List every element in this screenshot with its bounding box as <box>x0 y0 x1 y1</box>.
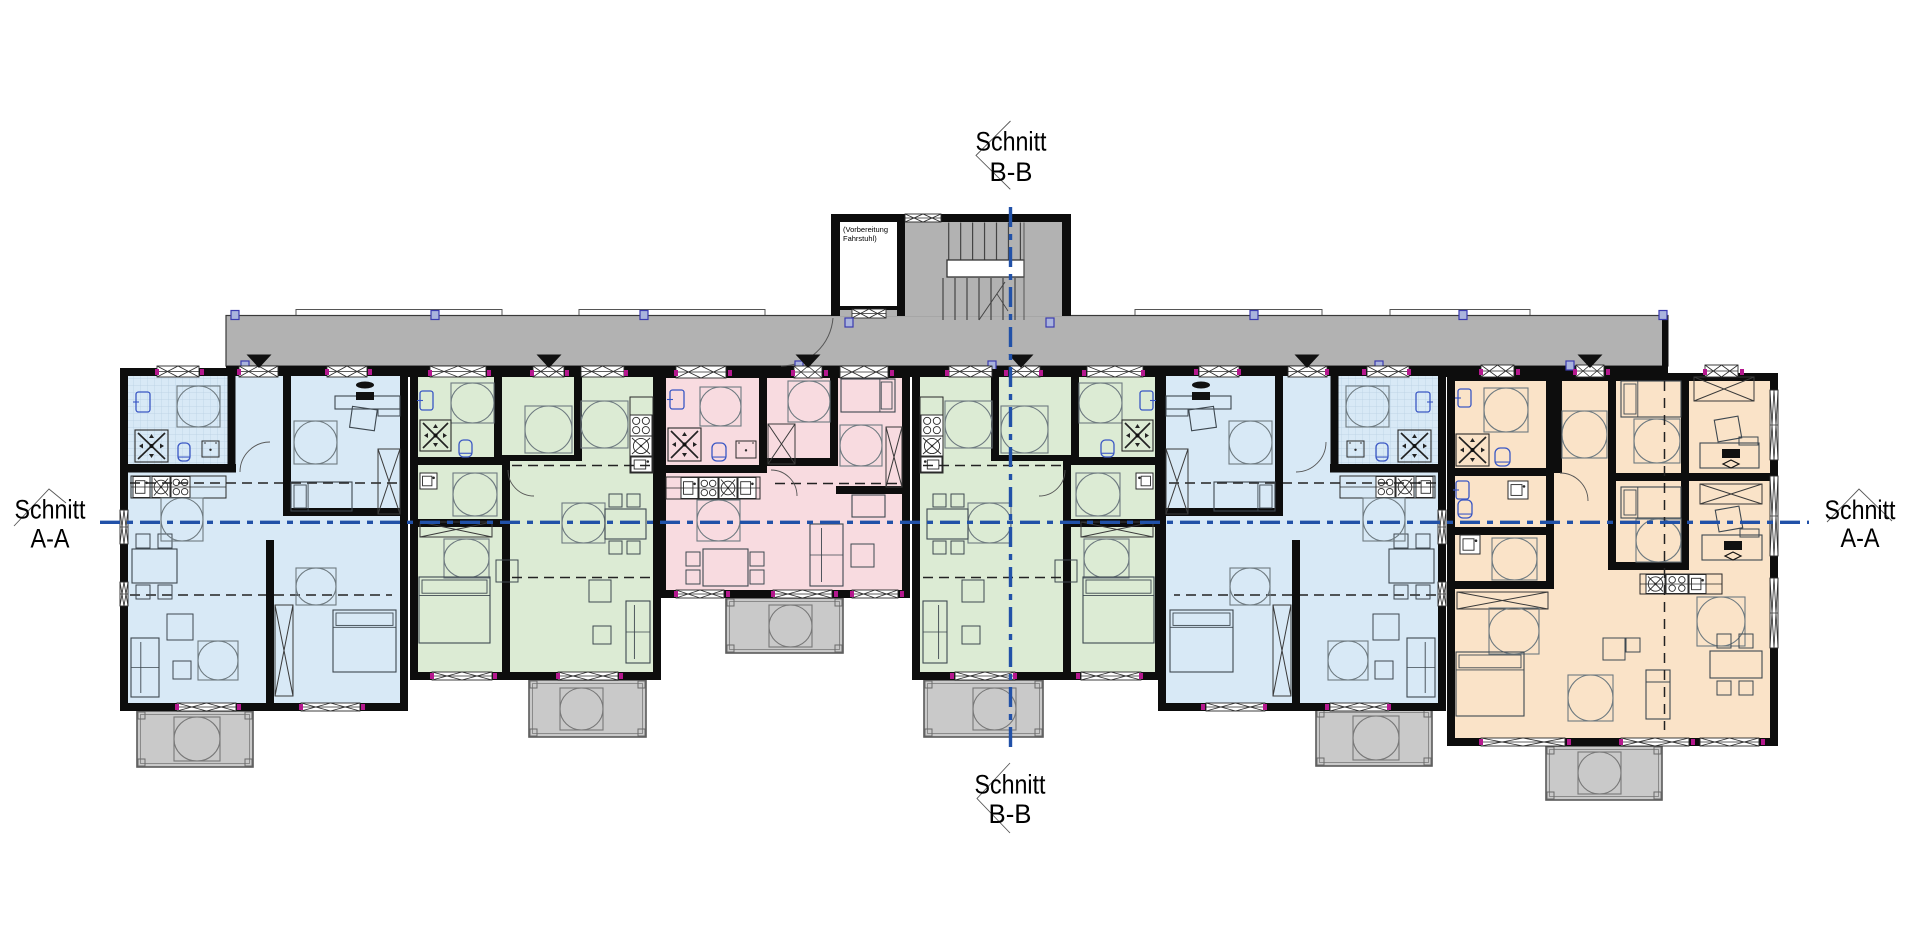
svg-text:Schnitt: Schnitt <box>976 127 1048 157</box>
svg-text:(Vorbereitung: (Vorbereitung <box>843 225 888 234</box>
svg-text:A-A: A-A <box>31 524 70 554</box>
svg-text:Schnitt: Schnitt <box>1825 495 1897 525</box>
svg-text:B-B: B-B <box>990 157 1033 187</box>
svg-text:Schnitt: Schnitt <box>975 770 1047 800</box>
svg-text:Fahrstuhl): Fahrstuhl) <box>843 234 877 243</box>
svg-text:Schnitt: Schnitt <box>15 495 87 525</box>
svg-text:A-A: A-A <box>1841 523 1880 553</box>
svg-text:B-B: B-B <box>989 799 1032 829</box>
